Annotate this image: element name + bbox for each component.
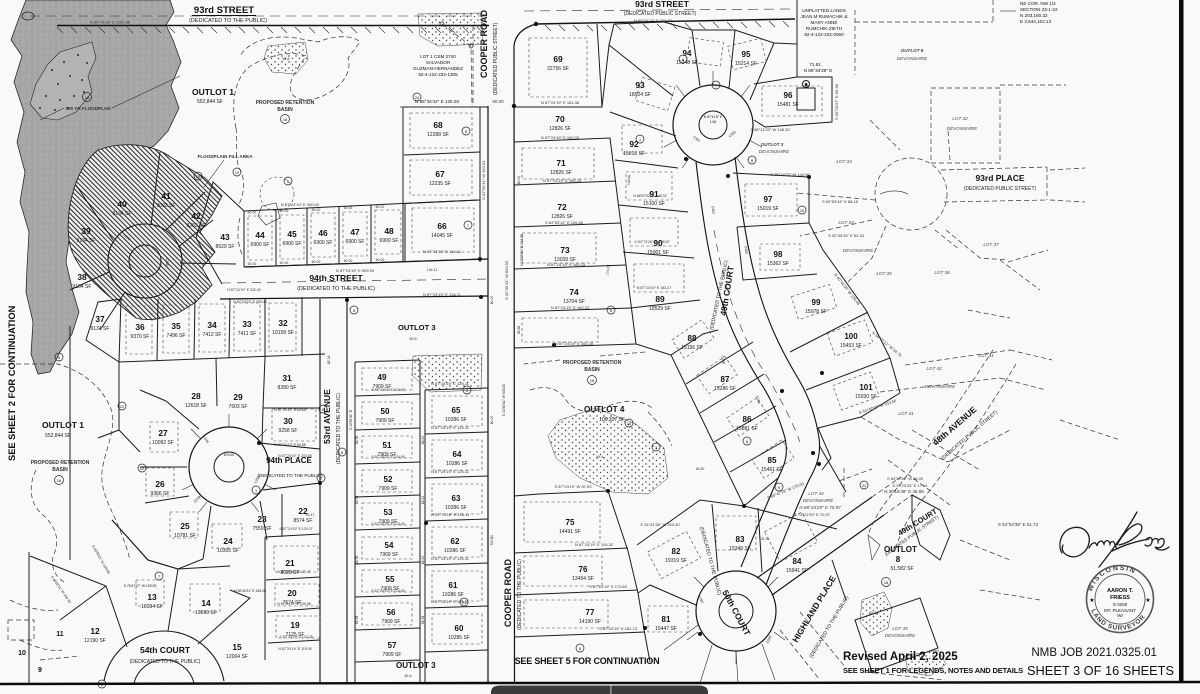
svg-text:19319 SF: 19319 SF [665,558,687,564]
svg-text:45.47: 45.47 [306,513,315,517]
svg-text:LOT 45: LOT 45 [892,626,908,631]
svg-text:W-6: W-6 [404,673,412,678]
svg-text:NMB JOB 2021.0325.01: NMB JOB 2021.0325.01 [1031,646,1157,659]
svg-text:N 87°24'19" E 134.11: N 87°24'19" E 134.11 [423,249,462,254]
svg-text:N 87°24'19" E 125.11: N 87°24'19" E 125.11 [431,381,470,386]
svg-text:21: 21 [462,601,466,605]
svg-text:54: 54 [385,541,394,550]
svg-text:99: 99 [812,298,821,307]
svg-text:30: 30 [283,416,293,426]
svg-text:S 87°24'19" E 181.73: S 87°24'19" E 181.73 [599,626,638,631]
svg-text:N 87°24'19" E 160.33: N 87°24'19" E 160.33 [541,135,580,140]
svg-text:53: 53 [384,508,393,517]
svg-text:N 87°24'19" E 183.27: N 87°24'19" E 183.27 [637,286,671,290]
svg-text:FLOODPLAIN FILL AREA: FLOODPLAIN FILL AREA [198,154,254,159]
svg-text:15030 SF: 15030 SF [855,394,877,400]
svg-text:15156 SF: 15156 SF [681,345,703,351]
svg-text:W-4: W-4 [596,454,604,459]
svg-text:BASIN: BASIN [584,367,600,373]
svg-text:6900 SF: 6900 SF [283,241,302,247]
svg-text:6900 SF: 6900 SF [380,238,399,244]
svg-text:48: 48 [384,226,394,236]
svg-text:6: 6 [58,356,60,360]
svg-text:552,844 SF: 552,844 SF [45,433,71,439]
svg-text:C309: C309 [728,130,737,138]
svg-text:9370 SF: 9370 SF [131,334,150,340]
svg-text:40: 40 [117,199,127,209]
svg-text:86: 86 [743,415,752,424]
svg-text:62.14: 62.14 [327,356,331,365]
svg-text:62: 62 [451,537,460,546]
svg-text:(DEDICATED PUBLIC STREET): (DEDICATED PUBLIC STREET) [624,11,697,17]
svg-text:S 87°24'19" E 124.00: S 87°24'19" E 124.00 [371,589,404,593]
svg-text:7909 SF: 7909 SF [382,619,401,625]
svg-text:16: 16 [590,378,595,383]
svg-text:9258 SF: 9258 SF [279,428,298,434]
svg-text:8: 8 [896,555,901,564]
svg-text:(DEDICATED TO THE PUBLIC): (DEDICATED TO THE PUBLIC) [257,473,322,478]
svg-text:C306: C306 [744,246,749,255]
svg-text:552,844 SF: 552,844 SF [197,99,223,105]
svg-text:C303: C303 [711,206,716,215]
svg-text:S 87°24'19" E 124.00: S 87°24'19" E 124.00 [371,522,404,526]
svg-text:500.80: 500.80 [490,535,494,545]
svg-text:70: 70 [555,114,565,124]
svg-text:N 87°24'19" E 84.68: N 87°24'19" E 84.68 [274,408,306,412]
svg-text:N 87°24'19" E 162.28: N 87°24'19" E 162.28 [555,341,594,346]
svg-text:(DEDICATED PUBLIC STREET): (DEDICATED PUBLIC STREET) [964,186,1037,192]
svg-text:12: 12 [140,467,144,471]
svg-text:174.28: 174.28 [606,264,611,275]
svg-text:47: 47 [350,227,360,237]
svg-text:S 87°24'19" E 124.00: S 87°24'19" E 124.00 [371,455,404,459]
svg-text:6900 SF: 6900 SF [314,240,333,246]
svg-text:14: 14 [201,598,211,608]
svg-text:N 87°24'19" E 84.68: N 87°24'19" E 84.68 [274,443,306,447]
svg-text:N 88'57'02" E 148.32: N 88'57'02" E 148.32 [633,194,667,198]
svg-text:7496 SF: 7496 SF [167,333,186,339]
svg-text:S 84°73'26" W 168.87: S 84°73'26" W 168.87 [634,240,669,244]
svg-text:11: 11 [56,631,64,638]
svg-text:FRIESS: FRIESS [1110,595,1130,601]
svg-text:★: ★ [1089,597,1094,604]
svg-text:OUTLOT 3: OUTLOT 3 [398,323,436,332]
svg-text:S 76'47'27" W 129.09: S 76'47'27" W 129.09 [124,584,157,588]
svg-text:63.78: 63.78 [355,436,359,445]
svg-text:Revised April 2, 2025: Revised April 2, 2025 [843,651,958,663]
svg-text:15447 SF: 15447 SF [655,626,677,632]
svg-text:19: 19 [290,620,300,630]
svg-text:10: 10 [627,422,631,426]
svg-text:16: 16 [85,95,90,100]
svg-text:N 87°24'19" E 299.44: N 87°24'19" E 299.44 [233,300,267,304]
svg-text:C258: C258 [165,258,169,266]
svg-text:134.11: 134.11 [427,268,437,272]
svg-text:15214 SF: 15214 SF [735,61,757,67]
svg-text:72: 72 [557,202,567,212]
svg-text:LOT 36: LOT 36 [934,270,950,275]
svg-text:(DEDICATED TO THE PUBLIC): (DEDICATED TO THE PUBLIC) [130,659,201,665]
svg-text:92: 92 [629,139,639,149]
svg-text:12190 SF: 12190 SF [84,638,106,644]
svg-text:6: 6 [322,408,324,412]
svg-text:1.56: 1.56 [710,120,717,124]
svg-text:60.00: 60.00 [376,205,385,209]
svg-text:C294: C294 [755,395,761,404]
svg-text:63: 63 [452,494,461,503]
svg-text:S 87°24'19" E 122.45: S 87°24'19" E 122.45 [279,635,312,639]
svg-text:★: ★ [1145,597,1150,604]
svg-text:SEE SHEET 1 FOR LEGENDS, NOTES: SEE SHEET 1 FOR LEGENDS, NOTES AND DETAI… [843,666,1023,675]
svg-text:DEVONSHIRE: DEVONSHIRE [885,633,916,638]
svg-text:60.00: 60.00 [344,206,353,210]
svg-text:80.00: 80.00 [490,296,494,305]
svg-text:15019 SF: 15019 SF [757,206,779,212]
svg-text:1: 1 [639,138,641,142]
svg-text:12: 12 [90,626,100,636]
svg-text:15001 SF: 15001 SF [647,250,669,256]
svg-text:8: 8 [579,647,581,651]
svg-text:71: 71 [556,158,566,168]
svg-text:93rd STREET: 93rd STREET [194,5,254,16]
svg-text:S 00°10'07" E 90.38: S 00°10'07" E 90.38 [834,83,839,120]
svg-text:N 40°44'30" W 126.46: N 40°44'30" W 126.46 [833,272,862,307]
svg-text:OUTLOT 8: OUTLOT 8 [901,48,924,53]
svg-text:94: 94 [683,49,692,58]
svg-text:7412 SF: 7412 SF [203,332,222,338]
svg-text:7: 7 [320,477,322,481]
svg-text:OUTLOT 3: OUTLOT 3 [396,661,436,670]
svg-text:15461 SF: 15461 SF [761,467,783,473]
svg-text:35: 35 [171,321,181,331]
svg-text:31: 31 [282,373,292,383]
svg-text:36: 36 [135,322,145,332]
svg-text:LOT 33: LOT 33 [836,159,852,164]
svg-text:12826 SF: 12826 SF [549,126,571,132]
svg-text:92-4-122-232-0060: 92-4-122-232-0060 [804,32,844,37]
svg-text:10158 SF: 10158 SF [272,330,294,336]
svg-text:24: 24 [415,96,419,100]
svg-text:71.81: 71.81 [809,62,821,67]
svg-text:N 02°35'41" W 163.54: N 02°35'41" W 163.54 [481,160,486,200]
svg-text:S 54°42'03" W 153.56: S 54°42'03" W 153.56 [858,398,898,415]
svg-text:8: 8 [341,451,343,455]
svg-text:63.78: 63.78 [355,616,359,625]
svg-text:9: 9 [778,486,780,490]
svg-text:57: 57 [388,641,397,650]
svg-text:45: 45 [287,229,297,239]
svg-text:65: 65 [452,406,461,415]
svg-text:N 87°24'19" E 160.33: N 87°24'19" E 160.33 [547,262,586,267]
svg-text:N 89°34'29" E: N 89°34'29" E [804,68,833,73]
svg-text:15: 15 [232,642,242,652]
svg-text:HIGHLAND PLACE: HIGHLAND PLACE [790,573,838,644]
svg-text:7909 SF: 7909 SF [380,552,399,558]
svg-text:C298: C298 [720,355,725,364]
svg-text:6: 6 [682,58,684,62]
svg-text:N 87°24'19" E 203.55: N 87°24'19" E 203.55 [278,454,312,458]
svg-text:93: 93 [635,80,645,90]
svg-text:21: 21 [285,558,295,568]
svg-text:C244: C244 [202,435,210,444]
svg-text:3: 3 [655,446,657,450]
svg-text:LOT 42: LOT 42 [926,366,942,371]
svg-text:876.00: 876.00 [224,453,234,457]
svg-text:15941 SF: 15941 SF [786,568,808,574]
svg-text:92-4-122-232-1305: 92-4-122-232-1305 [418,72,458,77]
svg-text:15286 SF: 15286 SF [714,386,736,392]
svg-text:61: 61 [449,581,458,590]
svg-text:28: 28 [191,391,201,401]
svg-text:PROPOSED RETENTION: PROPOSED RETENTION [256,100,315,106]
svg-text:LOT 37: LOT 37 [983,242,999,247]
svg-text:OUTLOT 3: OUTLOT 3 [761,142,784,147]
svg-text:N 87°24'19" E 104.32: N 87°24'19" E 104.32 [575,542,614,547]
svg-text:8574 SF: 8574 SF [294,518,313,524]
svg-text:60.00: 60.00 [376,258,385,262]
svg-text:S 54°04'35" E 51.72: S 54°04'35" E 51.72 [998,522,1039,527]
svg-text:46: 46 [318,228,328,238]
svg-text:34: 34 [207,320,217,330]
svg-text:DEVONSHIRE: DEVONSHIRE [897,56,928,61]
svg-text:N 88°34'29" E 70.97: N 88°34'29" E 70.97 [799,505,841,510]
svg-text:50: 50 [381,407,390,416]
svg-text:10286 SF: 10286 SF [446,461,468,467]
svg-text:84: 84 [793,557,802,566]
svg-text:89: 89 [655,294,665,304]
svg-text:15481 SF: 15481 SF [777,102,799,108]
svg-text:E 2,544,102.13: E 2,544,102.13 [1020,19,1052,24]
svg-text:6: 6 [287,180,289,184]
svg-text:96: 96 [784,91,793,100]
svg-text:N 87°24'19" E 161.38: N 87°24'19" E 161.38 [541,100,580,105]
svg-text:N 56°42'12" W 94.76: N 56°42'12" W 94.76 [871,330,903,358]
svg-text:39: 39 [81,226,91,236]
svg-text:95: 95 [742,50,751,59]
svg-text:15349 SF: 15349 SF [729,546,751,552]
svg-text:N 87°24'19" E 134.11: N 87°24'19" E 134.11 [423,292,462,297]
svg-text:10: 10 [18,650,26,657]
svg-text:19: 19 [196,175,200,179]
svg-text:DEVONSHIRE: DEVONSHIRE [947,126,978,131]
svg-text:60.00: 60.00 [312,260,321,264]
svg-text:60.00: 60.00 [312,208,321,212]
svg-text:9154 SF: 9154 SF [73,284,92,290]
svg-text:N 87°24'19" E 390.00: N 87°24'19" E 390.00 [281,202,320,207]
svg-text:S 00°53'44" E 88.16: S 00°53'44" E 88.16 [822,199,859,204]
svg-text:15100 SF: 15100 SF [643,201,665,207]
svg-text:37: 37 [95,314,105,324]
svg-text:98: 98 [774,250,783,259]
svg-text:60.00: 60.00 [280,261,289,265]
svg-text:6900 SF: 6900 SF [251,242,270,248]
svg-text:54th COURT: 54th COURT [140,645,191,655]
svg-text:93rd PLACE: 93rd PLACE [975,173,1024,183]
svg-text:W 87°24'19" E 125.11: W 87°24'19" E 125.11 [431,512,471,517]
svg-text:9134 SF: 9134 SF [113,211,132,217]
svg-text:LOT 32: LOT 32 [952,116,968,121]
svg-text:9134 SF: 9134 SF [91,326,110,332]
svg-text:N 89°24'18" E 1162.66: N 89°24'18" E 1162.66 [90,20,131,25]
svg-text:6: 6 [805,83,807,87]
svg-text:73: 73 [560,245,570,255]
svg-text:N 87°24'19" E 332.40: N 87°24'19" E 332.40 [227,288,261,292]
svg-text:N 87°24'19" E 160.33: N 87°24'19" E 160.33 [551,305,590,310]
svg-text:S 02'35'41" E: S 02'35'41" E [349,409,353,430]
svg-text:S 87°24'19" E 120.37: S 87°24'19" E 120.37 [279,527,312,531]
svg-text:7909 SF: 7909 SF [383,652,402,658]
svg-text:48th AVENUE: 48th AVENUE [931,404,979,447]
svg-text:10286 SF: 10286 SF [442,592,464,598]
svg-text:S-3260: S-3260 [1113,602,1128,607]
svg-text:42: 42 [191,211,201,221]
svg-text:66: 66 [437,221,447,231]
svg-text:95.36: 95.36 [517,326,521,335]
svg-text:24.30: 24.30 [761,537,770,541]
svg-text:60: 60 [455,624,464,633]
svg-text:7909 SF: 7909 SF [376,418,395,424]
svg-text:82.21: 82.21 [421,496,425,505]
svg-text:LOT 41: LOT 41 [898,411,914,416]
svg-text:DEVONSHIRE: DEVONSHIRE [843,248,874,253]
svg-text:63.78: 63.78 [355,496,359,505]
svg-text:8529 SF: 8529 SF [216,244,235,250]
svg-text:12826 SF: 12826 SF [550,170,572,176]
svg-text:GUZMAN-HERNANDEZ: GUZMAN-HERNANDEZ [413,66,463,71]
svg-text:LOT 35: LOT 35 [876,271,892,276]
svg-text:BASIN: BASIN [52,467,68,473]
svg-text:15078 SF: 15078 SF [805,309,827,315]
svg-text:16: 16 [57,478,62,483]
svg-text:S 88°31'23" W 148.33: S 88°31'23" W 148.33 [750,127,790,132]
svg-text:82.21: 82.21 [421,436,425,445]
svg-text:2: 2 [466,389,468,393]
svg-text:S 73°21'53" E 70.97: S 73°21'53" E 70.97 [794,512,831,517]
svg-text:C307: C307 [692,135,701,143]
svg-text:83: 83 [736,535,745,544]
svg-text:S 60'36'36" W 66.00: S 60'36'36" W 66.00 [887,476,924,481]
svg-text:16: 16 [884,580,889,585]
svg-text:W-5: W-5 [409,336,417,341]
svg-text:SEE SHEET 2 FOR CONTINUATION: SEE SHEET 2 FOR CONTINUATION [7,305,17,461]
svg-text:10286 SF: 10286 SF [444,548,466,554]
svg-text:12618 SF: 12618 SF [185,403,207,409]
svg-text:N 88°34'42" E 125.03: N 88°34'42" E 125.03 [415,99,459,104]
svg-text:87: 87 [721,375,730,384]
svg-text:26: 26 [155,479,165,489]
svg-text:COOPER ROAD: COOPER ROAD [503,558,513,627]
svg-text:10: 10 [800,209,804,213]
svg-text:LOT 44: LOT 44 [808,491,824,496]
svg-text:AARON T.: AARON T. [1107,588,1133,594]
svg-text:(DEDICATED PUBLIC STREET): (DEDICATED PUBLIC STREET) [493,22,499,95]
svg-text:100 YR FLOODPLAN: 100 YR FLOODPLAN [65,106,111,111]
svg-text:7: 7 [715,84,717,88]
svg-text:6: 6 [751,159,753,163]
svg-text:12235 SF: 12235 SF [429,181,451,187]
svg-text:N 203,160.32: N 203,160.32 [1020,13,1048,18]
svg-text:S 29'23'24" E 17.14: S 29'23'24" E 17.14 [893,483,929,488]
svg-text:7559 SF: 7559 SF [253,526,272,532]
svg-text:10305 SF: 10305 SF [217,548,239,554]
svg-text:25: 25 [180,521,190,531]
svg-text:74: 74 [569,287,579,297]
svg-text:9: 9 [38,667,42,674]
svg-text:RUMCHIK-ZIETH: RUMCHIK-ZIETH [806,26,842,31]
svg-text:55: 55 [386,575,395,584]
svg-text:33: 33 [242,319,252,329]
svg-text:60.00: 60.00 [280,209,289,213]
svg-text:53rd AVENUE: 53rd AVENUE [322,389,332,444]
svg-text:15013 SF: 15013 SF [623,151,645,157]
svg-text:UNPLATTED LANDS: UNPLATTED LANDS [802,8,846,13]
svg-text:88: 88 [688,334,697,343]
svg-text:38: 38 [77,272,87,282]
svg-text:51: 51 [383,441,392,450]
svg-text:12: 12 [120,405,124,409]
svg-text:15453 SF: 15453 SF [840,343,862,349]
svg-text:81: 81 [662,615,671,624]
svg-text:N 87'41'5" E: N 87'41'5" E [704,115,723,119]
svg-text:N 87°24'19" E 115.05: N 87°24'19" E 115.05 [278,647,311,651]
svg-text:51,582 SF: 51,582 SF [890,566,913,572]
svg-text:21: 21 [862,484,866,488]
svg-text:MARY ANNE: MARY ANNE [811,20,838,25]
svg-text:12288 SF: 12288 SF [427,132,449,138]
svg-text:75: 75 [566,518,575,527]
svg-text:14190 SF: 14190 SF [579,619,601,625]
svg-text:6900 SF: 6900 SF [346,239,365,245]
svg-text:76: 76 [579,565,588,574]
svg-text:SALVADOR: SALVADOR [426,60,451,65]
svg-text:10092 SF: 10092 SF [152,440,174,446]
svg-text:63.78: 63.78 [355,556,359,565]
svg-text:97: 97 [764,195,773,204]
svg-text:56: 56 [387,608,396,617]
svg-text:(DEDICATED TO THE PUBLIC): (DEDICATED TO THE PUBLIC) [189,18,267,24]
svg-text:SEE SHEET 5 FOR CONTINUATION: SEE SHEET 5 FOR CONTINUATION [515,656,660,666]
svg-text:64: 64 [453,450,462,459]
svg-text:24: 24 [223,536,233,546]
svg-text:144.60: 144.60 [627,174,632,185]
svg-text:10286 SF: 10286 SF [445,505,467,511]
svg-text:BASIN: BASIN [277,107,293,113]
svg-text:S 02°35'41" W 833.50: S 02°35'41" W 833.50 [504,260,509,300]
svg-text:8280 SF: 8280 SF [278,385,297,391]
svg-text:32: 32 [278,318,288,328]
svg-text:63.78: 63.78 [421,616,425,625]
svg-text:NE COR. NW 1/4: NE COR. NW 1/4 [1020,1,1056,6]
svg-text:9093 SF: 9093 SF [157,203,176,209]
svg-text:6: 6 [610,309,612,313]
svg-text:94th STREET: 94th STREET [309,273,363,283]
svg-text:18529 SF: 18529 SF [649,306,671,312]
svg-text:7909 SF: 7909 SF [379,486,398,492]
svg-text:13: 13 [147,592,157,602]
svg-text:OUTLOT 1: OUTLOT 1 [192,87,234,97]
svg-text:60.00: 60.00 [248,211,257,215]
svg-text:44: 44 [255,230,265,240]
svg-text:80.00: 80.00 [492,99,504,104]
svg-text:22756 SF: 22756 SF [547,66,569,72]
svg-text:82.21: 82.21 [421,556,425,565]
svg-text:1: 1 [255,489,257,493]
svg-text:10234 SF: 10234 SF [141,604,163,610]
svg-text:14045 SF: 14045 SF [431,233,453,239]
svg-text:18924 SF: 18924 SF [629,92,651,98]
svg-text:SHEET 3 OF 16 SHEETS: SHEET 3 OF 16 SHEETS [1027,663,1174,678]
svg-text:N 87°24'19" E 160.33: N 87°24'19" E 160.33 [543,178,582,183]
